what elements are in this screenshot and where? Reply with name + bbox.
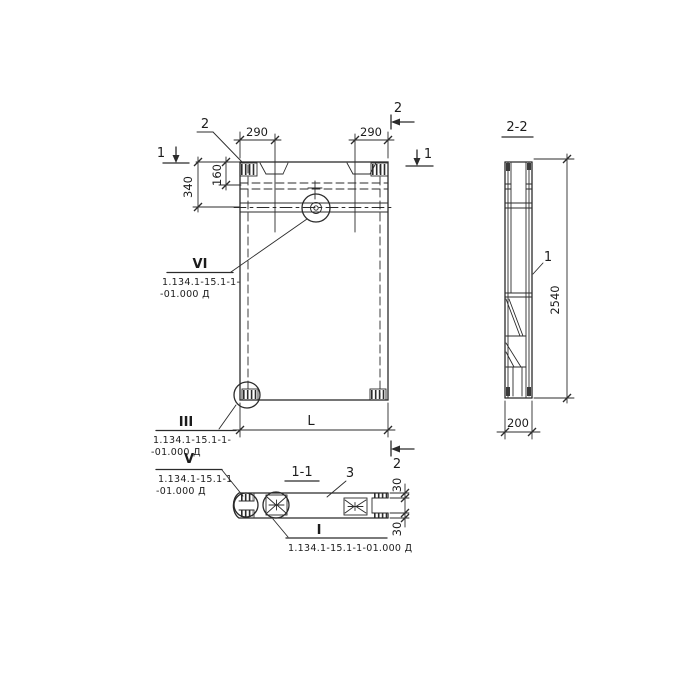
recess-top-right xyxy=(347,163,376,174)
detail-v-callout: V 1.134.1-15.1-1 -01.000 Д xyxy=(156,452,243,497)
lifting-loop-hatch-top-right xyxy=(371,163,388,176)
callout-part-2-label: 2 xyxy=(201,117,209,132)
dim-2540: 2540 xyxy=(534,154,574,403)
dim-length-label: L xyxy=(307,414,315,429)
section-1-1-view: 1-1 xyxy=(156,452,412,554)
dim-200-label: 200 xyxy=(507,416,529,430)
section-2-2-title-label: 2-2 xyxy=(506,120,527,135)
dim-340-label: 340 xyxy=(181,176,195,198)
section-mark-1-left-label: 1 xyxy=(157,146,165,161)
drawing-sheet: 290 290 160 340 xyxy=(0,0,700,700)
dim-200: 200 xyxy=(497,401,540,439)
dim-160: 160 xyxy=(196,157,241,190)
part-3-label: 3 xyxy=(346,466,354,481)
dim-290-left-label: 290 xyxy=(246,125,268,139)
detail-iii-numeral: III xyxy=(179,415,194,430)
keyway-detail-circled xyxy=(263,492,289,518)
dim-290-left: 290 xyxy=(234,125,281,158)
section-mark-1-left: 1 xyxy=(157,146,189,163)
detail-vi-doc-line1: 1.134.1-15.1-1- xyxy=(162,277,240,288)
keyway-detail-middle xyxy=(344,498,367,515)
horizontal-rib xyxy=(234,203,392,212)
section-1-1-body xyxy=(233,493,388,518)
section-1-1-title: 1-1 xyxy=(285,465,319,481)
dim-30-bottom-label: 30 xyxy=(390,522,404,537)
dim-290-right: 290 xyxy=(349,125,394,158)
section-mark-1-right: 1 xyxy=(406,147,433,166)
detail-iii-callout: III 1.134.1-15.1-1- -01.000 Д xyxy=(151,405,236,458)
center-hole-detail xyxy=(302,181,330,222)
dim-length: L xyxy=(233,403,395,437)
section-mark-2-top: 2 xyxy=(391,101,414,129)
dim-160-label: 160 xyxy=(210,164,224,186)
section-1-1-right-notch xyxy=(372,493,388,518)
part-1-callout: 1 xyxy=(533,250,552,274)
detail-vi-callout: VI 1.134.1-15.1-1- -01.000 Д xyxy=(160,219,307,300)
lifting-loop-hatch-top-left xyxy=(240,163,257,176)
section-2-2-corner-hatches xyxy=(506,163,531,396)
panel-drawing: 290 290 160 340 xyxy=(0,0,700,700)
detail-vi-numeral: VI xyxy=(193,257,208,272)
detail-v-doc-line2: -01.000 Д xyxy=(156,486,206,497)
section-2-2-internal xyxy=(505,184,532,396)
section-2-2-view: 2-2 xyxy=(497,120,574,439)
detail-i-doc-line1: 1.134.1-15.1-1-01.000 Д xyxy=(288,543,412,554)
section-1-1-title-label: 1-1 xyxy=(291,465,312,480)
section-mark-2-bottom-label: 2 xyxy=(393,457,401,472)
bottom-hatch-left xyxy=(242,389,258,400)
detail-v-numeral: V xyxy=(184,452,194,467)
section-mark-2-bottom: 2 xyxy=(391,441,414,472)
front-view: 290 290 160 340 xyxy=(151,101,433,472)
detail-vi-doc-line2: -01.000 Д xyxy=(160,289,210,300)
recess-top-left xyxy=(260,163,288,174)
detail-v-doc-line1: 1.134.1-15.1-1 xyxy=(158,474,233,485)
dim-30-flanges: 30 30 xyxy=(390,478,409,537)
dim-2540-label: 2540 xyxy=(548,285,562,314)
panel-outline xyxy=(240,162,388,400)
section-mark-2-top-label: 2 xyxy=(394,101,402,116)
dim-30-top-label: 30 xyxy=(390,478,404,493)
part-1-label: 1 xyxy=(544,250,552,265)
dim-290-right-label: 290 xyxy=(360,125,382,139)
bottom-hatch-right xyxy=(370,389,386,400)
section-mark-1-right-label: 1 xyxy=(424,147,432,162)
section-2-2-title: 2-2 xyxy=(502,120,533,137)
detail-i-numeral: I xyxy=(317,523,322,538)
detail-iii-doc-line1: 1.134.1-15.1-1- xyxy=(153,435,231,446)
